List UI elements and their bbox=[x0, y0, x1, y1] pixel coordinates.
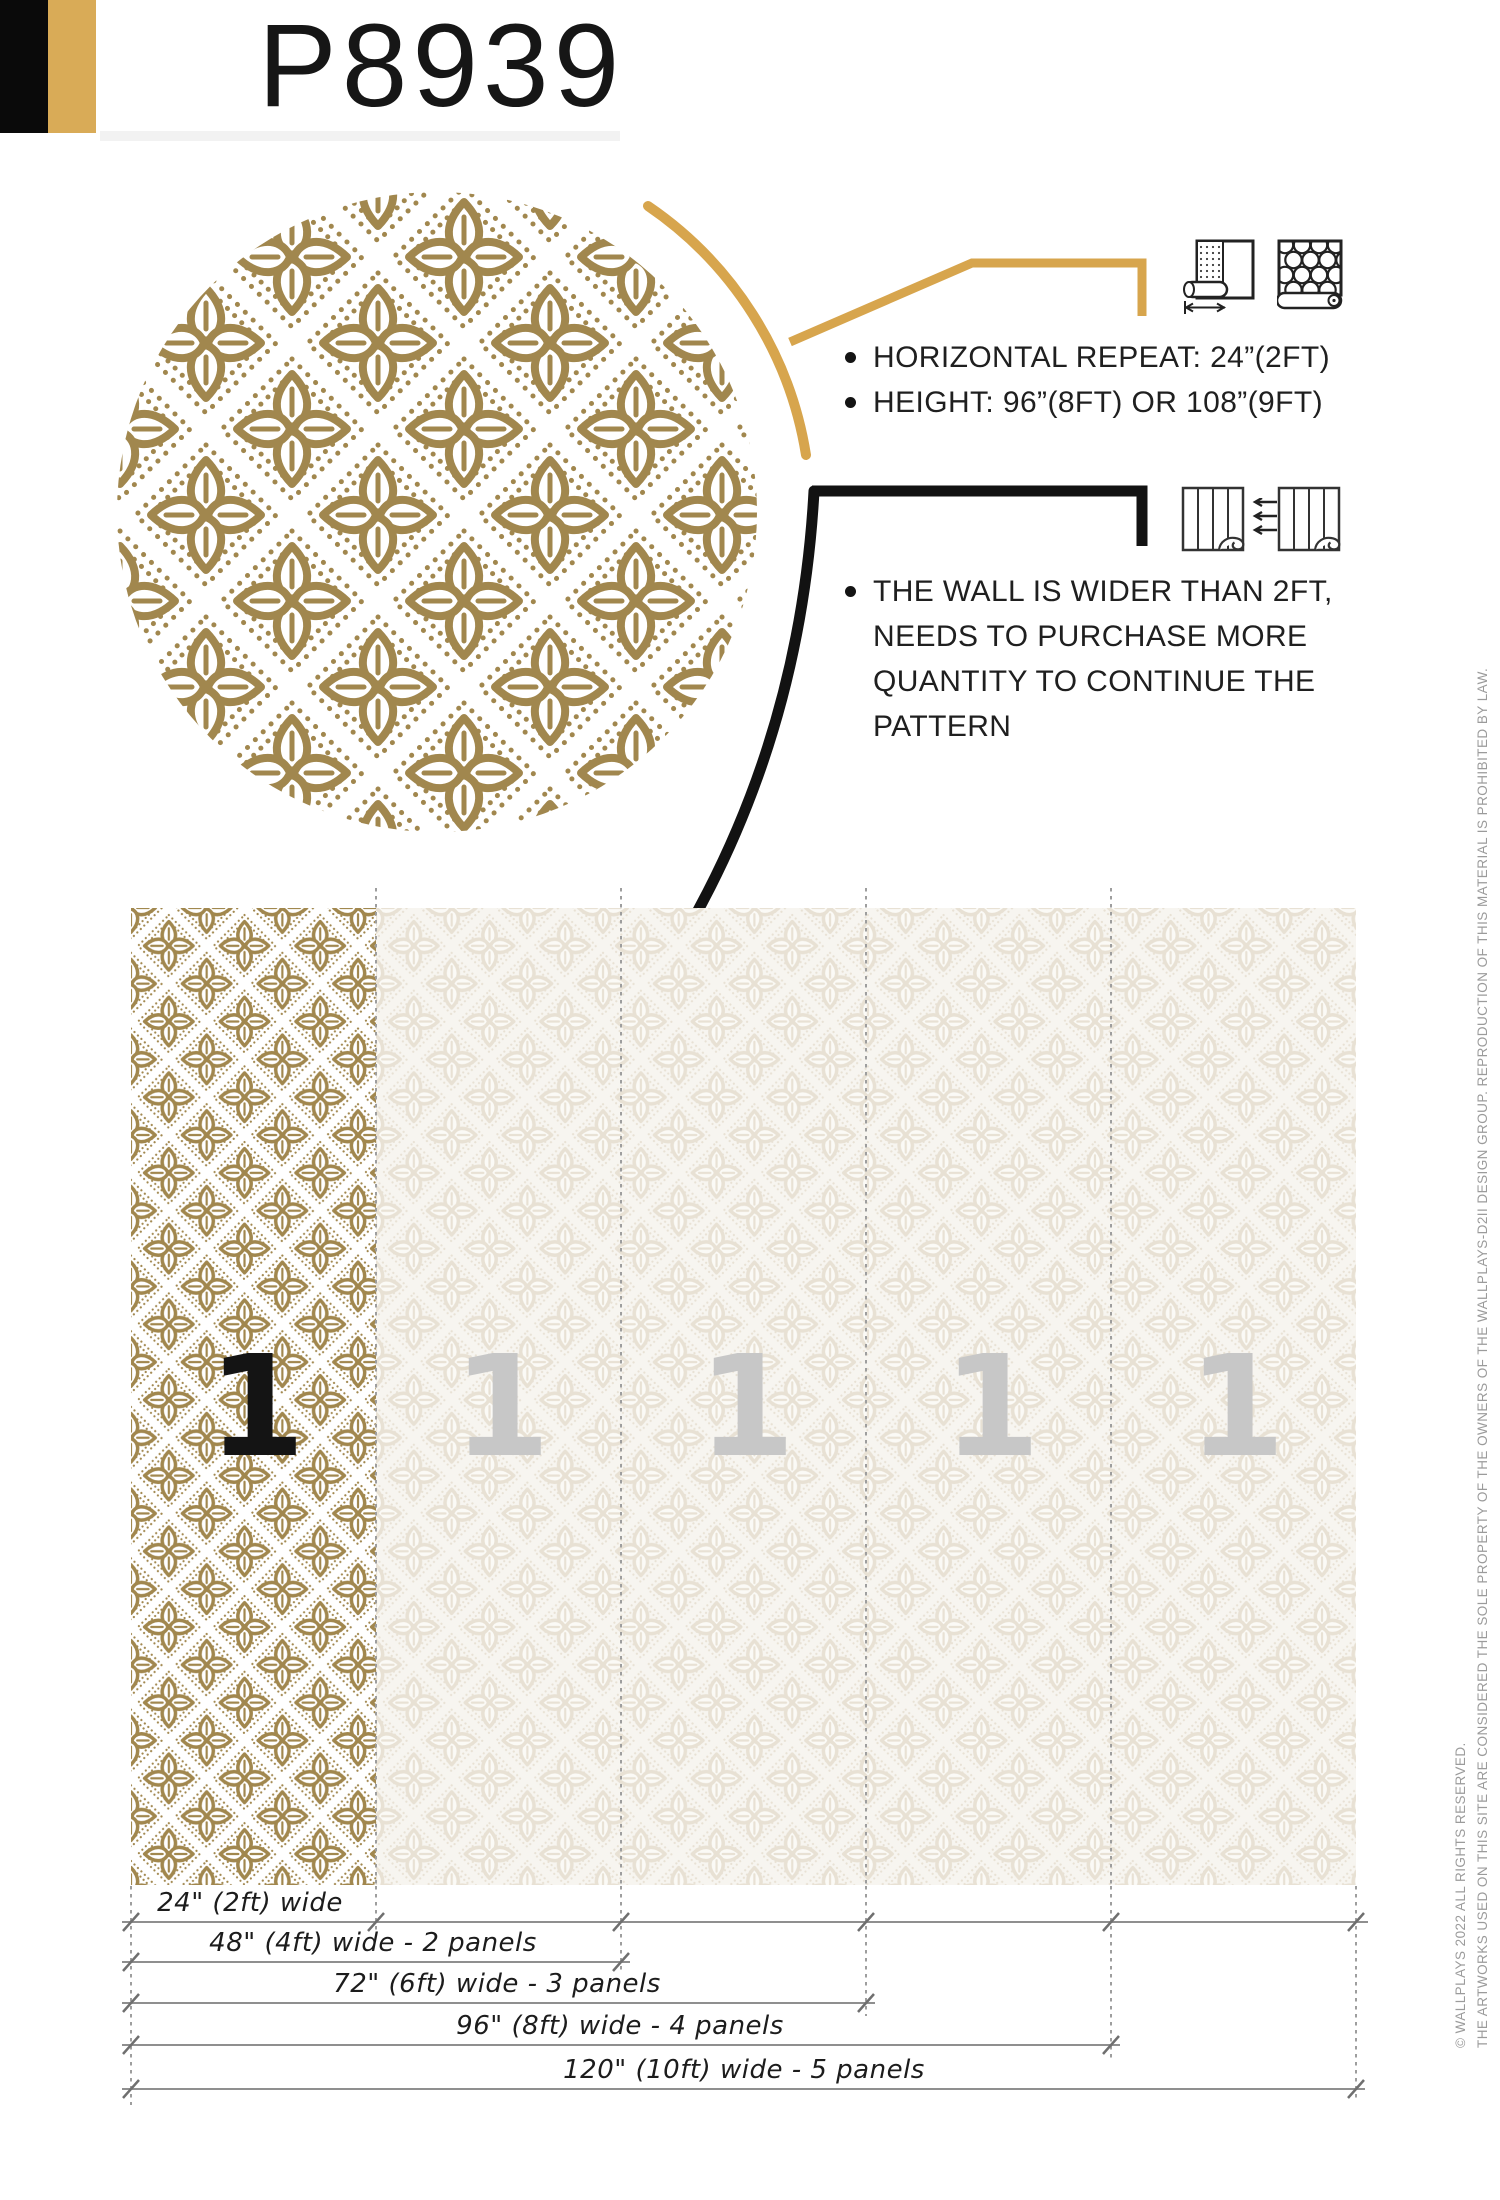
dimension-label-48in: 48" (4ft) wide - 2 panels bbox=[209, 1928, 537, 1958]
bullet-icon bbox=[845, 352, 856, 363]
list-item: QUANTITY TO CONTINUE THE bbox=[845, 665, 1333, 710]
list-item: THE WALL IS WIDER THAN 2FT, bbox=[845, 575, 1333, 620]
list-item: NEEDS TO PURCHASE MORE bbox=[845, 620, 1333, 665]
dimension-label-96in: 96" (8ft) wide - 4 panels bbox=[456, 2011, 784, 2041]
wallpaper-panel-icon bbox=[1277, 486, 1347, 558]
pattern-swatch-circle bbox=[117, 192, 757, 832]
brand-gold-block bbox=[48, 0, 96, 133]
spec-sheet-page: P8939 HORIZONTAL REPEAT: 24”( bbox=[0, 0, 1500, 2200]
panel-number-2: 1 bbox=[453, 1338, 543, 1478]
wider-wall-note: THE WALL IS WIDER THAN 2FT, NEEDS TO PUR… bbox=[845, 575, 1333, 755]
panel-number-1: 1 bbox=[208, 1338, 298, 1478]
dimension-label-120in: 120" (10ft) wide - 5 panels bbox=[563, 2055, 925, 2085]
bullet-icon bbox=[845, 586, 856, 597]
repeat-spec-list: HORIZONTAL REPEAT: 24”(2FT) HEIGHT: 96”(… bbox=[845, 341, 1330, 431]
patterned-roll-icon bbox=[1277, 239, 1345, 315]
panel-number-4: 1 bbox=[943, 1338, 1033, 1478]
list-item: HORIZONTAL REPEAT: 24”(2FT) bbox=[845, 341, 1330, 386]
panel-number-5: 1 bbox=[1188, 1338, 1278, 1478]
note-line: THE WALL IS WIDER THAN 2FT, bbox=[873, 575, 1333, 609]
list-item: HEIGHT: 96”(8FT) OR 108”(9FT) bbox=[845, 386, 1330, 431]
copyright-line-1: © WALLPLAYS 2022 ALL RIGHTS RESERVED. bbox=[1453, 1742, 1468, 2048]
diagram-canvas bbox=[0, 0, 1500, 2200]
page-title: P8939 bbox=[258, 0, 624, 133]
roll-width-measure-icon bbox=[1181, 239, 1255, 317]
panel-number-3: 1 bbox=[698, 1338, 788, 1478]
note-line: NEEDS TO PURCHASE MORE bbox=[873, 620, 1307, 654]
repeat-spec-text: HORIZONTAL REPEAT: 24”(2FT) bbox=[873, 341, 1330, 375]
bullet-icon bbox=[845, 397, 856, 408]
wallpaper-panel-icon bbox=[1181, 486, 1251, 558]
height-spec-text: HEIGHT: 96”(8FT) OR 108”(9FT) bbox=[873, 386, 1323, 420]
copyright-line-2: THE ARTWORKS USED ON THIS SITE ARE CONSI… bbox=[1475, 668, 1490, 2048]
brand-black-block bbox=[0, 0, 48, 133]
note-line: PATTERN bbox=[873, 710, 1011, 744]
note-line: QUANTITY TO CONTINUE THE bbox=[873, 665, 1315, 699]
left-arrows-icon bbox=[1251, 498, 1277, 538]
dimension-label-24in: 24" (2ft) wide bbox=[157, 1888, 343, 1918]
title-underline bbox=[100, 131, 620, 141]
dimension-label-72in: 72" (6ft) wide - 3 panels bbox=[333, 1969, 661, 1999]
list-item: PATTERN bbox=[845, 710, 1333, 755]
